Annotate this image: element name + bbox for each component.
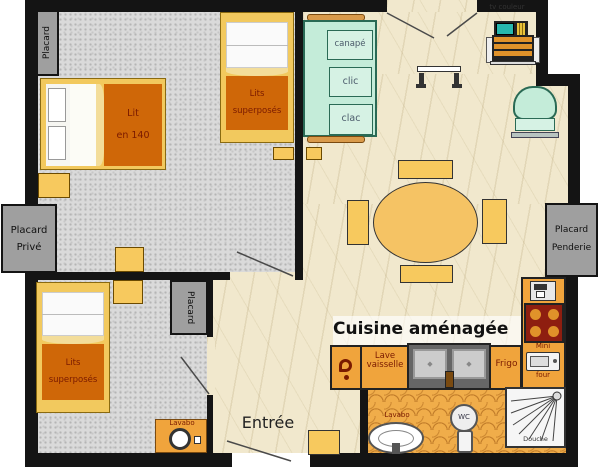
double-bed-label-1: Lit [127,109,139,119]
shower: Douche [505,387,566,448]
tv-screen-icon [496,23,514,35]
closet-prive: Placard Privé [1,204,57,273]
small-appliance-box [330,345,362,390]
bedroom2-doorway-floor [207,337,215,395]
dining-chair [347,200,369,245]
bed-blanket: Lit en 140 [104,84,162,166]
entry-label: Entrée [230,414,306,432]
tv-cabinet [492,35,534,61]
tv-shelf [494,51,532,56]
stove [524,303,564,343]
burner-icon [548,309,559,320]
closet-bedroom1-label: Placard [43,26,53,59]
mini-oven-label-top: Mini [526,343,560,351]
nightstand [113,280,143,304]
sofa-bed: canapé clic clac [303,14,377,143]
kitchen-title: Cuisine aménagée [333,320,531,339]
toilet-bowl: WC [450,404,478,432]
bunk-bed-top: Lits superposés [220,12,294,143]
bunk-bed-bottom: Lits superposés [36,282,110,413]
washbasin-bath-label: Lavabo [368,412,426,420]
dining-chair [398,160,453,179]
bunk-bed-top-label-2: superposés [233,107,282,116]
coffee-maker-icon [530,281,556,301]
toilet-label: WC [458,414,470,422]
sink-basin: ◆ [452,349,486,379]
dining-table [373,182,478,263]
washbasin-tap-icon [392,443,400,454]
armchair-seat [515,118,555,131]
closet-hall-label: Placard [184,291,194,324]
bunk-bed-top-label-1: Lits [250,90,265,99]
sofa-label: canapé [334,40,365,49]
mini-oven-label-bottom: four [526,372,560,380]
wall-top-left [25,0,387,12]
toilet-base [457,430,473,453]
wall-right-mid [568,74,580,207]
coffee-maker-top [534,284,547,290]
dishwasher-label: Lave vaisselle [362,352,408,371]
dishwasher-label-2: vaisselle [367,360,404,370]
side-table [273,147,294,160]
dining-chair [482,199,507,244]
bench-top [417,66,461,72]
nightstand [38,173,70,198]
tv-base [490,61,536,65]
microwave-icon [526,352,560,371]
bunk-mattress-divider [42,314,104,315]
tv-unit [486,21,540,65]
wall-right-lower [566,273,578,467]
faucet-icon [445,371,454,388]
small-appliance-dot [344,375,349,380]
tv-speaker-panel [517,23,525,35]
microwave-knob [553,359,557,363]
doormat [308,430,340,455]
wall-bottom-left [25,453,232,467]
closet-penderie-label-2: Penderie [552,244,591,254]
kitchen-sink: ◆ ◆ [407,343,491,390]
closet-bedroom1: Placard [36,10,59,76]
bunk-bed-bottom-label-2: superposés [49,376,98,385]
bunk-blanket-edge [42,336,104,344]
armchair-back [513,86,557,120]
armchair [511,86,559,139]
sink-basin: ◆ [413,349,447,379]
tv-label: tv couleur [476,4,538,12]
wall-bathroom-left [360,382,368,453]
bench-foot [452,84,462,88]
bed-blanket-edge [96,84,104,166]
burner-icon [530,309,541,320]
closet-penderie-label-1: Placard [555,226,588,236]
bench-table [415,63,463,90]
small-appliance-icon [339,359,352,372]
fridge-label: Frigo [491,360,522,370]
sofa-label-clac: clac [342,114,361,124]
burner-icon [548,326,559,337]
washbasin-bedroom: Lavabo [155,419,207,453]
balcony-door-threshold [387,0,477,12]
nightstand [115,247,144,272]
bed-sheet [70,84,96,166]
toilet: WC [447,402,483,456]
bed-pillow [48,126,66,160]
washbasin-bedroom-label: Lavabo [156,420,208,428]
shower-label: Douche [507,436,564,443]
closet-prive-label-1: Placard [11,225,48,236]
round-basin-icon [169,428,191,450]
sofa-cushion: canapé [327,30,373,60]
tv-set [494,21,528,37]
tv-shelf [494,37,532,42]
sofa-armrest [307,136,365,143]
closet-prive-label-2: Privé [17,242,42,253]
apartment-floor-plan: Placard Placard Privé Placard Placard Pe… [0,0,600,472]
sofa-cushion: clac [329,104,373,135]
wall-bedroom1-south [25,272,230,280]
bunk-mattress-divider [226,45,288,46]
closet-penderie: Placard Penderie [545,203,598,277]
side-table [306,147,322,160]
double-bed-label-2: en 140 [116,131,149,141]
washbasin-bath [368,422,424,454]
dining-chair [400,265,453,283]
microwave-door [530,356,549,367]
basin-handle-icon [194,436,201,444]
closet-hall: Placard [170,280,208,335]
wall-bedroom1-east [295,12,303,280]
double-bed: Lit en 140 [40,78,166,170]
bunk-bed-bottom-label-1: Lits [66,359,81,368]
bunk-blanket: Lits superposés [226,76,288,130]
sofa-label-clic: clic [343,77,359,87]
coffee-maker-pot [536,291,545,298]
burner-icon [530,326,541,337]
sofa-cushion: clic [329,67,372,97]
armchair-base [511,132,559,138]
wall-bottom-right [310,453,578,467]
bunk-blanket: Lits superposés [42,344,104,400]
bed-pillow [48,88,66,122]
bench-foot [416,84,426,88]
bunk-blanket-edge [226,68,288,76]
tv-shelf [494,44,532,49]
